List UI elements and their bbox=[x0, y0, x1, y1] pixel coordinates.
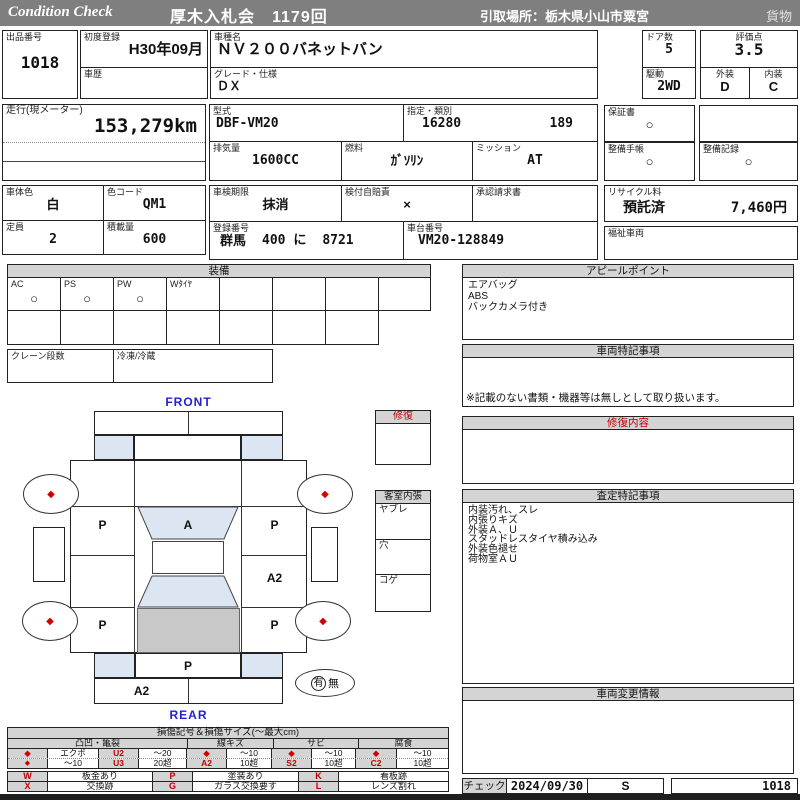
equipment-cell-empty bbox=[219, 277, 273, 311]
grade-value: ＤＸ bbox=[211, 79, 597, 94]
legend-group-rust: サビ bbox=[274, 739, 359, 748]
appeal-line: ABS bbox=[468, 291, 793, 302]
equipment-cell-ps: PS ○ bbox=[60, 277, 114, 311]
change-info-title: 車両変更情報 bbox=[463, 688, 793, 701]
mileage-value: 153,279km bbox=[3, 116, 205, 137]
assessment-line: 荷物室ＡＵ bbox=[468, 555, 793, 565]
windshield-mark: A bbox=[138, 518, 238, 532]
crane-label: クレーン段数 bbox=[8, 350, 113, 361]
capacity-value: 2 bbox=[3, 232, 103, 247]
fuel-label: 燃料 bbox=[342, 142, 472, 153]
equipment-cell-ac: AC ○ bbox=[7, 277, 61, 311]
legend-group-corrosion: 腐食 bbox=[359, 739, 448, 748]
equipment-cell-empty bbox=[325, 310, 379, 345]
damage-diamond-icon: ◆ bbox=[47, 489, 55, 500]
rear-right-corner-window bbox=[241, 653, 283, 678]
model-code-label: 型式 bbox=[210, 105, 403, 116]
color-code-value: QM1 bbox=[104, 197, 205, 212]
recycle-fee-box: リサイクル料 預託済 7,460円 bbox=[604, 185, 798, 222]
warranty-spare-box bbox=[699, 105, 798, 142]
pickup-location: 引取場所：栃木県小山市粟宮 bbox=[480, 6, 649, 25]
spare-yes-circled: 有 bbox=[311, 676, 326, 691]
diamond-small-icon: ◆ bbox=[8, 759, 48, 768]
doors-drive-box: ドア数 5 駆動 2WD bbox=[642, 30, 696, 99]
payload-value: 600 bbox=[104, 232, 205, 247]
legend-group-dent: 凸凹・亀裂 bbox=[8, 739, 188, 748]
rear-gate-panel: P bbox=[135, 653, 241, 678]
appeal-points-section: アピールポイント エアバッグ ABS バックカメラ付き bbox=[462, 264, 794, 340]
auction-title: 厚木入札会 1179回 bbox=[170, 3, 328, 27]
right-slide-door-mark: A2 bbox=[241, 571, 308, 585]
drive-value: 2WD bbox=[643, 79, 695, 94]
model-code-value: DBF-VM20 bbox=[210, 116, 403, 131]
change-info-section: 車両変更情報 bbox=[462, 687, 794, 774]
inspection-registration-box: 車検期限 抹消 検付自賠責 × 承認請求書 登録番号 群馬 400 に 8721… bbox=[209, 185, 598, 260]
cabin-lining-box: 客室内張 ヤブレ 穴 コゲ bbox=[375, 490, 431, 612]
damage-diamond-icon: ◆ bbox=[319, 616, 327, 627]
cabin-roof-panel bbox=[152, 541, 224, 574]
front-bumper-panel bbox=[94, 411, 283, 435]
repair-flag-box: 修復 bbox=[375, 410, 431, 465]
equipment-cell-empty bbox=[113, 310, 167, 345]
diamond-icon: ◆ bbox=[272, 749, 312, 758]
rear-bumper-panel: A2 bbox=[94, 678, 283, 704]
check-label: チェック bbox=[462, 778, 507, 794]
diamond-large-icon: ◆ bbox=[8, 749, 48, 758]
model-name-value: ＮＶ２００バネットバン bbox=[211, 42, 597, 57]
fuel-value: ｶﾞｿﾘﾝ bbox=[342, 153, 472, 168]
rear-left-corner-window bbox=[94, 653, 135, 678]
recycle-fee-value: 7,460円 bbox=[731, 197, 787, 217]
exterior-grade-label: 外装 bbox=[701, 68, 749, 79]
body-outline: P A P A2 P P bbox=[70, 460, 307, 653]
lot-number-box: 出品番号 1018 bbox=[2, 30, 78, 99]
approval-request-label: 承認請求書 bbox=[473, 186, 597, 197]
front-right-door-mark: P bbox=[241, 518, 308, 532]
lot-number-label: 出品番号 bbox=[3, 31, 77, 42]
grade-label: グレード・仕様 bbox=[211, 68, 597, 79]
chassis-number-label: 車台番号 bbox=[404, 222, 597, 233]
front-right-wheel: ◆ bbox=[297, 474, 353, 514]
engine-spec-box: 型式 DBF-VM20 指定・類別 16280 189 排気量 1600CC 燃… bbox=[209, 104, 598, 181]
cargo-roof-shaded bbox=[137, 608, 240, 653]
equipment-cell-empty bbox=[7, 310, 61, 345]
assessment-notes-section: 査定特記事項 内装汚れ、スレ 内張りキズ 外装Ａ、Ｕ スタッドレスタイヤ積み込み… bbox=[462, 489, 794, 684]
equipment-cell-empty bbox=[60, 310, 114, 345]
displacement-label: 排気量 bbox=[210, 142, 341, 153]
vehicle-notes-title: 車両特記事項 bbox=[463, 345, 793, 358]
front-label: FRONT bbox=[94, 395, 283, 409]
chassis-number-value: VM20-128849 bbox=[404, 233, 597, 248]
inspection-label: 車検期限 bbox=[210, 186, 341, 197]
type-number-value: 16280 bbox=[422, 116, 461, 131]
first-registration-value: H30年09月 bbox=[81, 42, 207, 57]
notes-disclaimer: ※記載のない書類・機器等は無しとして取り扱います。 bbox=[466, 390, 725, 405]
rear-left-quarter-mark: P bbox=[71, 618, 134, 632]
spare-no: 無 bbox=[328, 675, 339, 691]
equipment-title: 装備 bbox=[7, 264, 431, 278]
lining-row-tear: ヤブレ bbox=[376, 504, 430, 515]
rear-left-wheel: ◆ bbox=[22, 601, 78, 641]
registration-number-value: 群馬 400 に 8721 bbox=[210, 233, 403, 248]
maintenance-book-value: ○ bbox=[605, 154, 694, 169]
recycle-status-value: 預託済 bbox=[623, 197, 665, 217]
exterior-grade-value: D bbox=[701, 79, 749, 94]
vehicle-category: 貨物 bbox=[766, 6, 792, 25]
capacity-label: 定員 bbox=[3, 221, 103, 232]
warranty-value: ○ bbox=[605, 117, 694, 132]
equipment-cell-pw: PW ○ bbox=[113, 277, 167, 311]
refrigeration-box: 冷凍/冷蔵 bbox=[113, 349, 273, 383]
color-capacity-box: 車体色 白 色コード QM1 定員 2 積載量 600 bbox=[2, 185, 206, 255]
lot-number-value: 1018 bbox=[3, 55, 77, 70]
spare-tire-indicator: 有 無 bbox=[295, 669, 355, 697]
equipment-cell-empty bbox=[166, 310, 220, 345]
equipment-cell-empty bbox=[272, 310, 326, 345]
type-class-label: 指定・類別 bbox=[404, 105, 597, 116]
front-right-corner-window bbox=[241, 435, 283, 460]
maintenance-book-label: 整備手帳 bbox=[605, 143, 694, 154]
bottom-border-bar bbox=[0, 794, 800, 800]
title-bar: Condition Check 厚木入札会 1179回 引取場所：栃木県小山市粟… bbox=[0, 0, 800, 26]
cabin-lining-title: 客室内張 bbox=[376, 491, 430, 504]
front-left-corner-window bbox=[94, 435, 134, 460]
maintenance-record-label: 整備記録 bbox=[700, 143, 797, 154]
repair-details-title: 修復内容 bbox=[463, 417, 793, 430]
equipment-cell-empty bbox=[219, 310, 273, 345]
equipment-cell-empty bbox=[325, 277, 379, 311]
brand-logo: Condition Check bbox=[8, 4, 113, 21]
crane-box: クレーン段数 bbox=[7, 349, 114, 383]
left-sill-panel bbox=[33, 527, 65, 582]
recycle-fee-label: リサイクル料 bbox=[605, 186, 797, 197]
score-value: 3.5 bbox=[701, 42, 797, 57]
insurance-value: × bbox=[342, 197, 472, 212]
front-left-door-mark: P bbox=[71, 518, 134, 532]
front-left-wheel: ◆ bbox=[23, 474, 79, 514]
rear-bumper-mark: A2 bbox=[95, 684, 188, 698]
appeal-line: バックカメラ付き bbox=[468, 302, 793, 313]
repair-codes-table: W 板金あり P 塗装あり K 看板跡 X 交換跡 G ガラス交換要す L レン… bbox=[7, 771, 449, 792]
repair-flag-title: 修復 bbox=[376, 411, 430, 424]
registration-number-label: 登録番号 bbox=[210, 222, 403, 233]
diamond-icon: ◆ bbox=[187, 749, 227, 758]
body-color-label: 車体色 bbox=[3, 186, 103, 197]
inspection-value: 抹消 bbox=[210, 197, 341, 212]
lining-row-burn: コゲ bbox=[376, 575, 430, 586]
damage-diamond-icon: ◆ bbox=[46, 616, 54, 627]
warranty-label: 保証書 bbox=[605, 106, 694, 117]
body-color-value: 白 bbox=[3, 197, 103, 212]
rear-label: REAR bbox=[94, 708, 283, 722]
equipment-cell-empty bbox=[378, 277, 431, 311]
check-date: 2024/09/30 bbox=[506, 778, 588, 794]
equipment-cell-empty bbox=[272, 277, 326, 311]
rear-window-shape bbox=[138, 576, 238, 607]
score-box: 評価点 3.5 外装 D 内装 C bbox=[700, 30, 798, 99]
legend-group-scratch: 線キズ bbox=[188, 739, 274, 748]
insurance-label: 検付自賠責 bbox=[342, 186, 472, 197]
damage-diamond-icon: ◆ bbox=[321, 489, 329, 500]
drive-label: 駆動 bbox=[643, 68, 695, 79]
rear-right-wheel: ◆ bbox=[295, 601, 351, 641]
rear-gate-mark: P bbox=[136, 659, 240, 673]
maintenance-record-box: 整備記録 ○ bbox=[699, 142, 798, 181]
welfare-vehicle-box: 福祉車両 bbox=[604, 226, 798, 260]
cowl-panel bbox=[134, 435, 241, 460]
diamond-icon: ◆ bbox=[356, 749, 397, 758]
vehicle-notes-section: 車両特記事項 ※記載のない書類・機器等は無しとして取り扱います。 bbox=[462, 344, 794, 407]
doors-label: ドア数 bbox=[643, 31, 695, 42]
class-number-value: 189 bbox=[550, 116, 573, 131]
repair-details-section: 修復内容 bbox=[462, 416, 794, 484]
transmission-label: ミッション bbox=[473, 142, 597, 153]
history-label: 車歴 bbox=[81, 68, 207, 79]
welfare-vehicle-label: 福祉車両 bbox=[605, 227, 797, 238]
right-sill-panel bbox=[311, 527, 338, 582]
color-code-label: 色コード bbox=[104, 186, 205, 197]
auction-sheet: { "colors": {"header_bg":"#7f7f7f","sect… bbox=[0, 0, 800, 800]
payload-label: 積載量 bbox=[104, 221, 205, 232]
maintenance-book-box: 整備手帳 ○ bbox=[604, 142, 695, 181]
equipment-cell-wtire: Wﾀｲﾔ bbox=[166, 277, 220, 311]
check-lot-number: 1018 bbox=[671, 778, 798, 794]
registration-history-box: 初度登録 H30年09月 車歴 bbox=[80, 30, 208, 99]
assessment-notes-title: 査定特記事項 bbox=[463, 490, 793, 503]
refrigeration-label: 冷凍/冷蔵 bbox=[114, 350, 272, 361]
warranty-box: 保証書 ○ bbox=[604, 105, 695, 142]
mileage-box: 走行(現メーター) 153,279km bbox=[2, 104, 206, 181]
transmission-value: AT bbox=[473, 153, 597, 168]
check-inspector: S bbox=[587, 778, 664, 794]
displacement-value: 1600CC bbox=[210, 153, 341, 168]
legend-title: 損傷記号＆損傷サイズ(〜最大cm) bbox=[8, 728, 448, 739]
appeal-line: エアバッグ bbox=[468, 280, 793, 291]
model-grade-box: 車種名 ＮＶ２００バネットバン グレード・仕様 ＤＸ bbox=[210, 30, 598, 99]
maintenance-record-value: ○ bbox=[700, 154, 797, 169]
appeal-points-title: アピールポイント bbox=[463, 265, 793, 278]
interior-grade-label: 内装 bbox=[750, 68, 797, 79]
interior-grade-value: C bbox=[750, 79, 797, 94]
vehicle-diagram: FRONT P A P A2 P P ◆ ◆ ◆ ◆ P A2 bbox=[0, 395, 460, 730]
doors-value: 5 bbox=[643, 42, 695, 57]
lining-row-hole: 穴 bbox=[376, 540, 430, 551]
damage-legend-table: 損傷記号＆損傷サイズ(〜最大cm) 凸凹・亀裂 線キズ サビ 腐食 ◆ エクボ … bbox=[7, 727, 449, 769]
